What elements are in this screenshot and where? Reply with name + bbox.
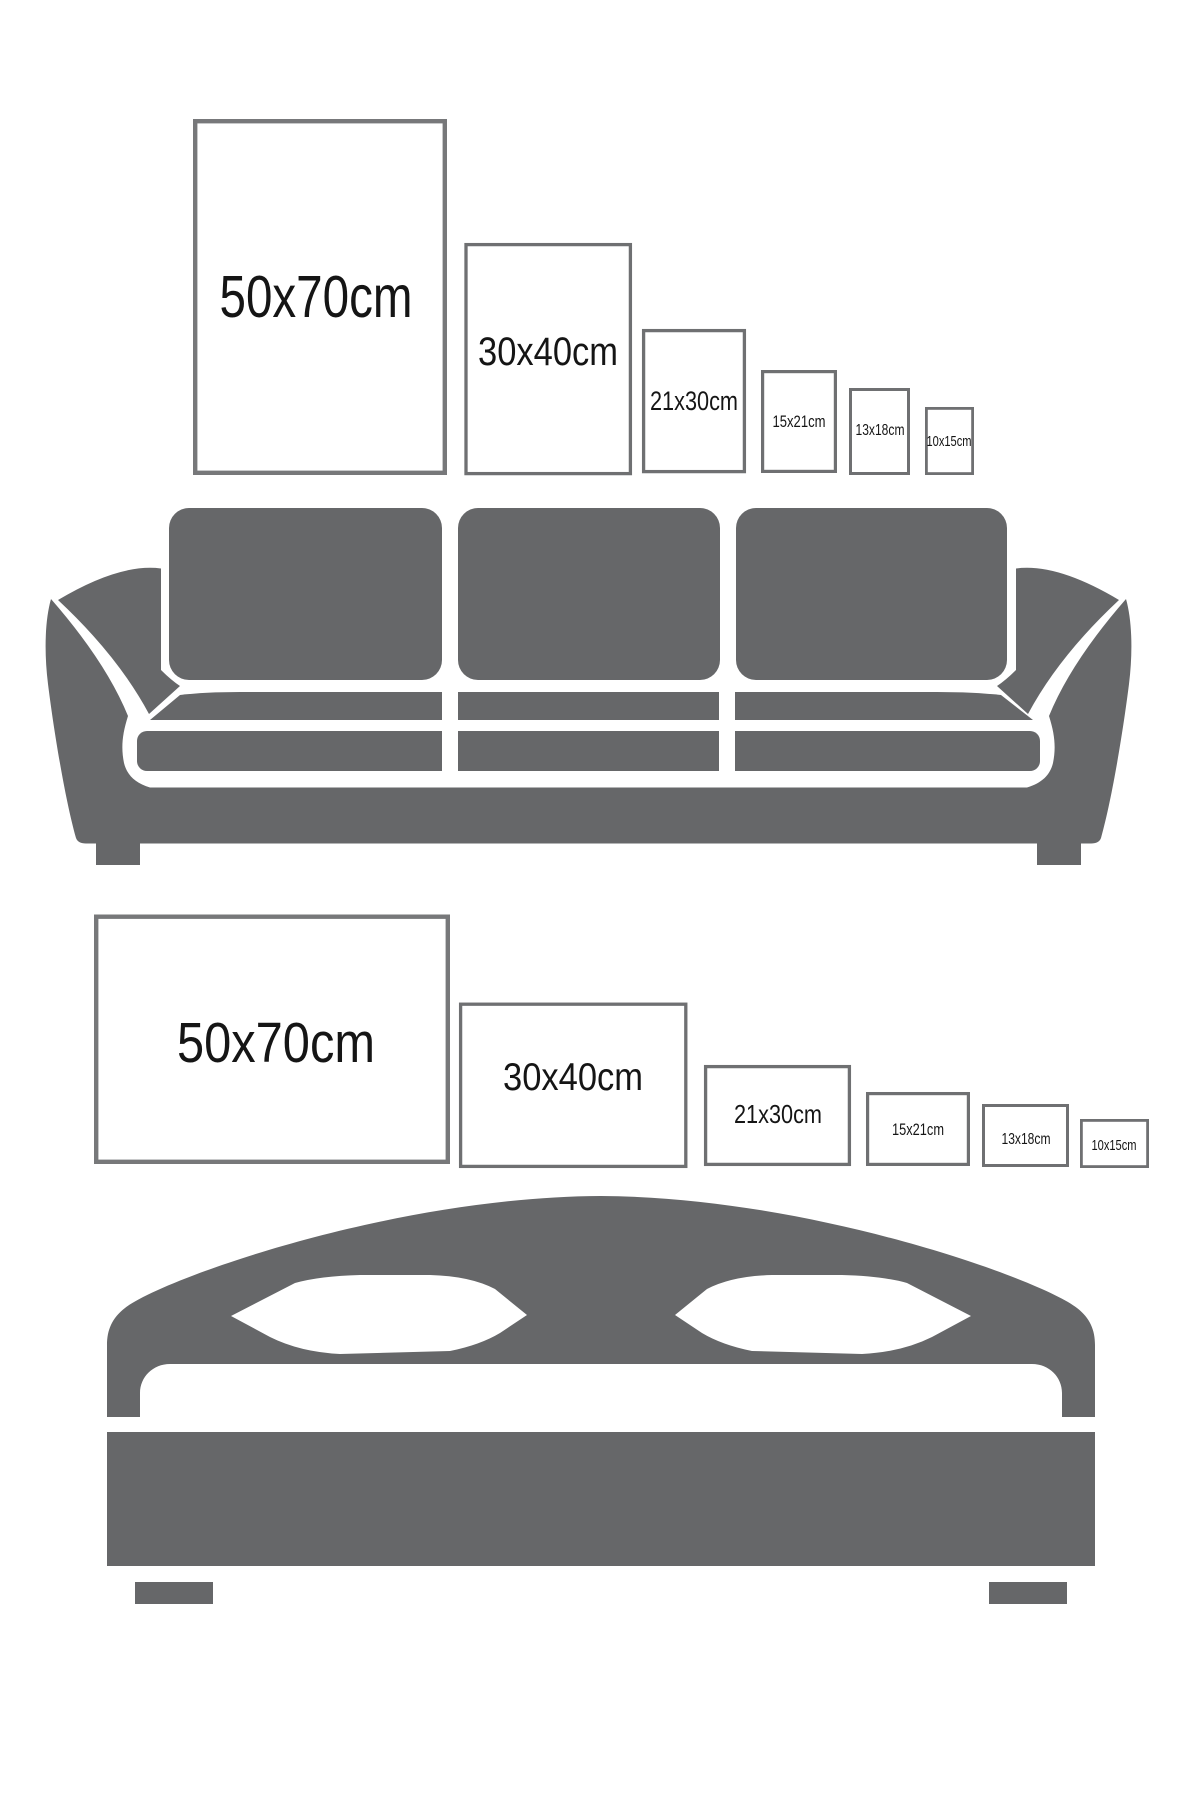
svg-text:10x15cm: 10x15cm [1092, 1137, 1137, 1154]
svg-text:30x40cm: 30x40cm [478, 330, 618, 374]
svg-text:21x30cm: 21x30cm [650, 386, 738, 416]
svg-text:15x21cm: 15x21cm [773, 412, 826, 431]
svg-text:10x15cm: 10x15cm [927, 433, 972, 450]
svg-text:50x70cm: 50x70cm [220, 264, 413, 330]
svg-text:13x18cm: 13x18cm [1002, 1131, 1051, 1148]
svg-text:50x70cm: 50x70cm [177, 1011, 375, 1075]
svg-text:30x40cm: 30x40cm [503, 1056, 643, 1099]
svg-text:15x21cm: 15x21cm [892, 1120, 944, 1139]
svg-text:13x18cm: 13x18cm [856, 422, 905, 439]
svg-text:21x30cm: 21x30cm [734, 1099, 822, 1129]
